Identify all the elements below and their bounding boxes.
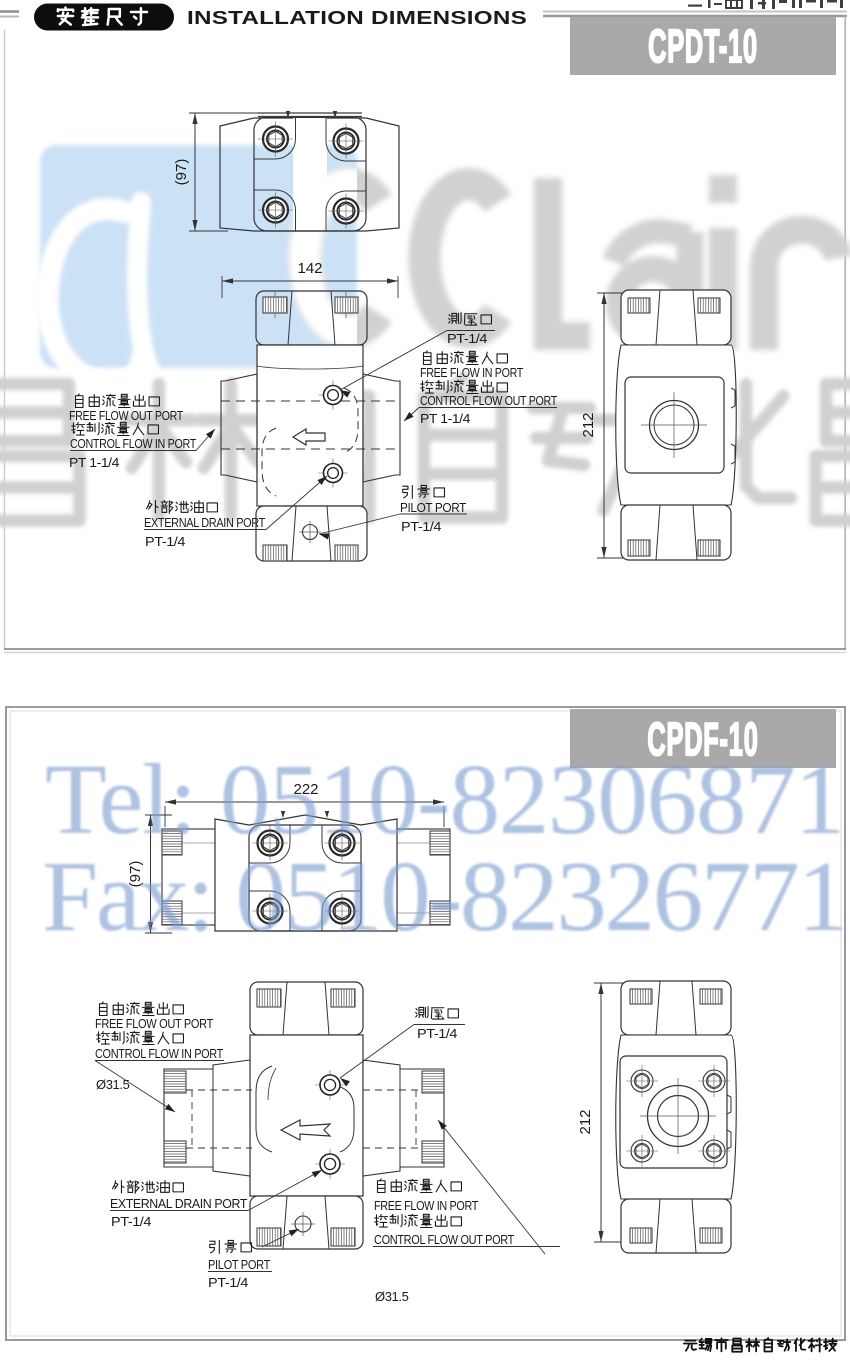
svg-text:PT 1-1/4: PT 1-1/4 <box>69 455 119 470</box>
svg-text:FREE FLOW OUT PORT: FREE FLOW OUT PORT <box>69 408 183 423</box>
svg-text:Ø31.5: Ø31.5 <box>375 1289 409 1304</box>
svg-text:PT-1/4: PT-1/4 <box>417 1026 457 1041</box>
svg-text:PT-1/4: PT-1/4 <box>208 1275 248 1290</box>
svg-text:PT 1-1/4: PT 1-1/4 <box>420 411 470 426</box>
svg-text:EXTERNAL DRAIN PORT: EXTERNAL DRAIN PORT <box>144 515 265 530</box>
svg-text:FREE FLOW OUT PORT: FREE FLOW OUT PORT <box>95 1016 213 1031</box>
svg-text:CPDT-10: CPDT-10 <box>648 20 758 72</box>
svg-text:CONTROL FLOW OUT PORT: CONTROL FLOW OUT PORT <box>420 393 557 408</box>
svg-text:142: 142 <box>297 260 322 277</box>
svg-text:FREE FLOW IN PORT: FREE FLOW IN PORT <box>374 1198 478 1213</box>
svg-text:CONTROL FLOW OUT PORT: CONTROL FLOW OUT PORT <box>374 1232 514 1247</box>
svg-text:INSTALLATION DIMENSIONS: INSTALLATION DIMENSIONS <box>187 7 527 28</box>
svg-text:EXTERNAL DRAIN PORT: EXTERNAL DRAIN PORT <box>110 1196 247 1211</box>
svg-text:PT-1/4: PT-1/4 <box>447 331 487 346</box>
svg-text:CONTROL FLOW IN PORT: CONTROL FLOW IN PORT <box>70 436 196 451</box>
svg-text:212: 212 <box>580 412 597 437</box>
svg-text:(97): (97) <box>173 159 190 186</box>
svg-text:CONTROL FLOW IN PORT: CONTROL FLOW IN PORT <box>95 1046 223 1061</box>
svg-text:PT-1/4: PT-1/4 <box>401 519 441 534</box>
svg-text:PT-1/4: PT-1/4 <box>145 534 185 549</box>
svg-text:Fax: 0510-82326771: Fax: 0510-82326771 <box>42 840 848 952</box>
svg-text:FREE FLOW IN PORT: FREE FLOW IN PORT <box>420 365 523 380</box>
svg-text:Tel: 0510-82306871: Tel: 0510-82306871 <box>45 743 845 855</box>
svg-text:PILOT PORT: PILOT PORT <box>208 1257 270 1272</box>
svg-text:212: 212 <box>577 1109 594 1134</box>
svg-text:PILOT PORT: PILOT PORT <box>400 500 466 515</box>
svg-text:PT-1/4: PT-1/4 <box>111 1214 151 1229</box>
